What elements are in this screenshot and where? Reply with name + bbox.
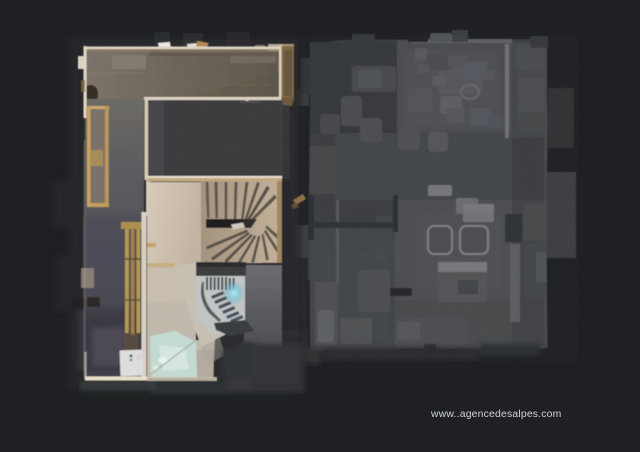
- svg-text:www..agencedesalpes.com: www..agencedesalpes.com: [430, 409, 562, 420]
